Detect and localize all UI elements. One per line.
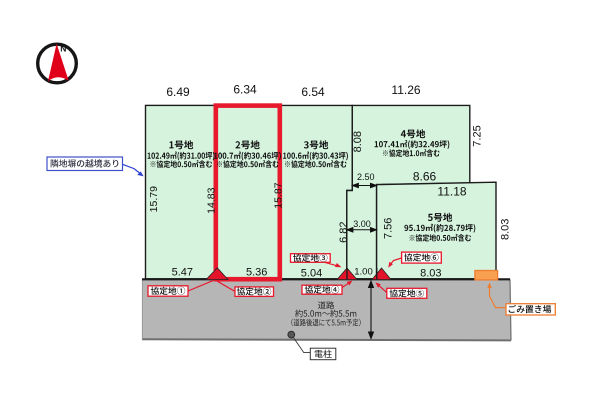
svg-text:5.36: 5.36 bbox=[246, 267, 267, 279]
svg-text:11.26: 11.26 bbox=[391, 83, 420, 97]
svg-text:6.34: 6.34 bbox=[233, 83, 257, 97]
svg-text:14.83: 14.83 bbox=[206, 187, 218, 213]
svg-text:5.04: 5.04 bbox=[301, 267, 322, 279]
svg-text:3.00: 3.00 bbox=[353, 219, 371, 229]
svg-text:11.18: 11.18 bbox=[437, 185, 466, 199]
svg-text:6.54: 6.54 bbox=[301, 85, 325, 99]
svg-text:6.49: 6.49 bbox=[166, 85, 190, 99]
svg-text:6.82: 6.82 bbox=[338, 221, 350, 242]
svg-text:7.56: 7.56 bbox=[382, 218, 394, 239]
svg-text:8.08: 8.08 bbox=[352, 131, 364, 152]
svg-text:15.79: 15.79 bbox=[148, 186, 160, 212]
svg-text:7.25: 7.25 bbox=[472, 125, 484, 146]
svg-text:8.03: 8.03 bbox=[499, 219, 511, 240]
svg-text:5.47: 5.47 bbox=[172, 267, 193, 279]
svg-text:15.87: 15.87 bbox=[272, 182, 284, 208]
svg-text:1.00: 1.00 bbox=[354, 266, 373, 277]
svg-text:8.03: 8.03 bbox=[420, 268, 441, 280]
svg-text:8.66: 8.66 bbox=[413, 170, 437, 184]
svg-text:N: N bbox=[60, 44, 66, 54]
svg-text:2.50: 2.50 bbox=[357, 172, 375, 182]
